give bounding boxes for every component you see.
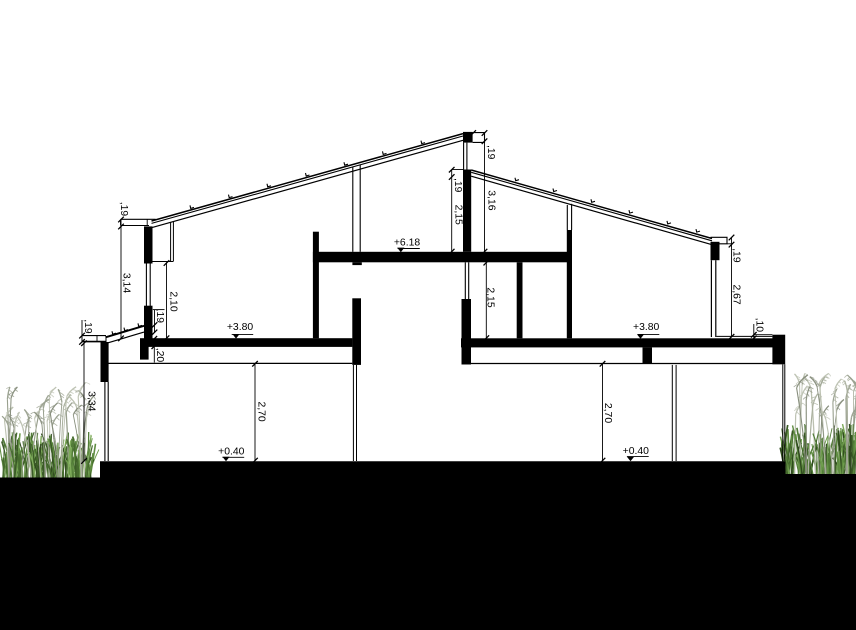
svg-text:+3.80: +3.80 [633, 322, 660, 333]
svg-text:,19: ,19 [82, 319, 93, 334]
svg-text:,10: ,10 [753, 318, 764, 333]
svg-text:,19: ,19 [154, 309, 165, 324]
svg-text:+0.40: +0.40 [218, 447, 245, 458]
svg-text:,20: ,20 [154, 348, 165, 363]
svg-text:2,10: 2,10 [168, 291, 179, 311]
svg-text:,19: ,19 [118, 202, 129, 217]
svg-text:,19: ,19 [452, 178, 463, 193]
svg-text:3,16: 3,16 [486, 190, 497, 210]
svg-text:2,67: 2,67 [731, 284, 742, 304]
svg-text:+3.80: +3.80 [227, 322, 254, 333]
svg-text:2,15: 2,15 [484, 287, 495, 307]
svg-text:2,70: 2,70 [602, 403, 613, 423]
svg-text:2,70: 2,70 [256, 401, 267, 421]
svg-text:,19: ,19 [731, 248, 742, 263]
svg-text:3,14: 3,14 [121, 273, 132, 293]
svg-text:3,34: 3,34 [86, 391, 97, 411]
svg-text:2,15: 2,15 [453, 205, 464, 225]
svg-text:+6.18: +6.18 [394, 238, 421, 249]
svg-text:+0.40: +0.40 [623, 446, 650, 457]
svg-text:,19: ,19 [485, 145, 496, 160]
